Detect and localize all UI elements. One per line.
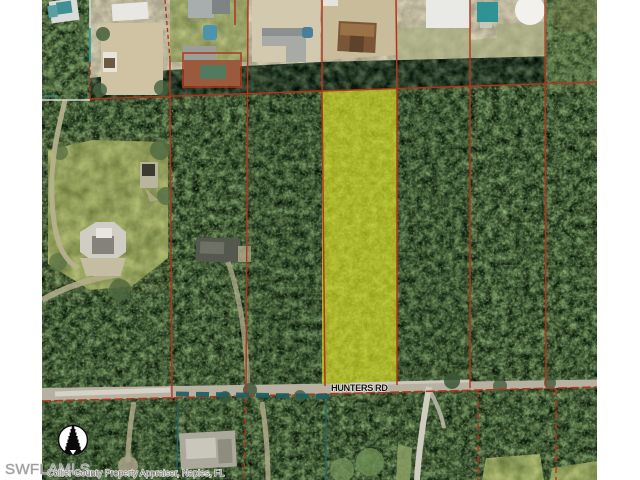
svg-text:Collier County Property Apprai: Collier County Property Appraiser, Naple…: [47, 468, 225, 478]
svg-text:HUNTERS RD: HUNTERS RD: [331, 383, 388, 393]
